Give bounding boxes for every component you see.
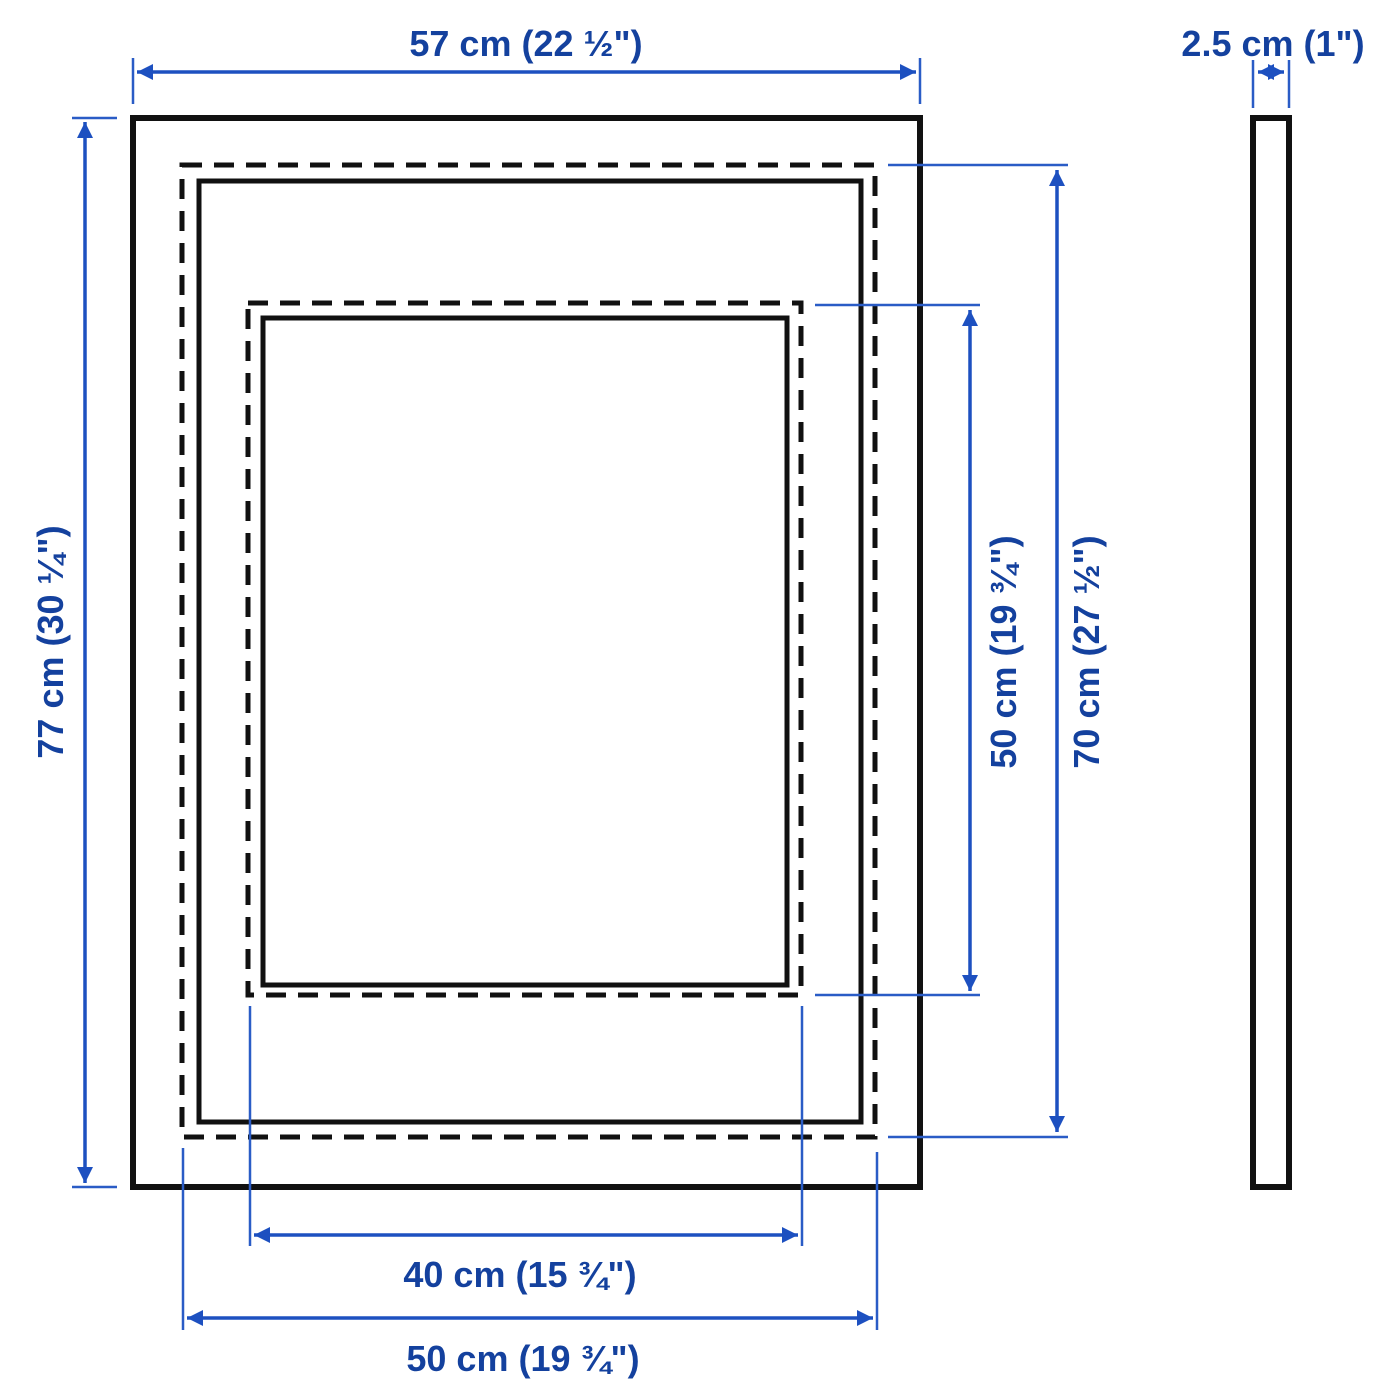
- frame-height-label: 77 cm (30 ¼"): [30, 525, 71, 758]
- back-size-dashed-outline: [182, 165, 875, 1137]
- side-view: [1253, 118, 1289, 1187]
- mat-opening-width-extension-lines: [250, 1006, 802, 1246]
- frame-depth-label: 2.5 cm (1"): [1181, 23, 1364, 64]
- dimension-frame-height: 77 cm (30 ¼"): [30, 118, 117, 1187]
- frame-width-extension-lines: [133, 58, 920, 104]
- dimension-frame-width: 57 cm (22 ½"): [133, 23, 920, 104]
- mat-opening-dashed-outline: [248, 303, 801, 995]
- picture-width-extension-lines: [183, 1148, 877, 1330]
- back-height-label: 70 cm (27 ½"): [1066, 535, 1107, 768]
- frame-depth-extension-lines: [1253, 60, 1289, 108]
- picture-opening-edge: [263, 318, 787, 985]
- dimension-frame-depth: 2.5 cm (1"): [1181, 23, 1364, 108]
- frame-height-extension-lines: [72, 118, 117, 1187]
- mat-opening-width-label: 40 cm (15 ¾"): [403, 1254, 636, 1295]
- dimension-diagram: 57 cm (22 ½") 2.5 cm (1") 77 cm (30 ¼") …: [0, 0, 1400, 1400]
- back-height-extension-lines: [888, 165, 1068, 1137]
- picture-height-label: 50 cm (19 ¾"): [983, 535, 1024, 768]
- mat-outer-edge: [199, 181, 861, 1122]
- picture-height-extension-lines: [815, 305, 980, 995]
- frame-width-label: 57 cm (22 ½"): [409, 23, 642, 64]
- frame-side-profile: [1253, 118, 1289, 1187]
- frame-dimension-drawing: 57 cm (22 ½") 2.5 cm (1") 77 cm (30 ¼") …: [0, 0, 1400, 1400]
- dimension-mat-opening-width: 40 cm (15 ¾"): [250, 1006, 802, 1295]
- picture-width-label: 50 cm (19 ¾"): [406, 1338, 639, 1379]
